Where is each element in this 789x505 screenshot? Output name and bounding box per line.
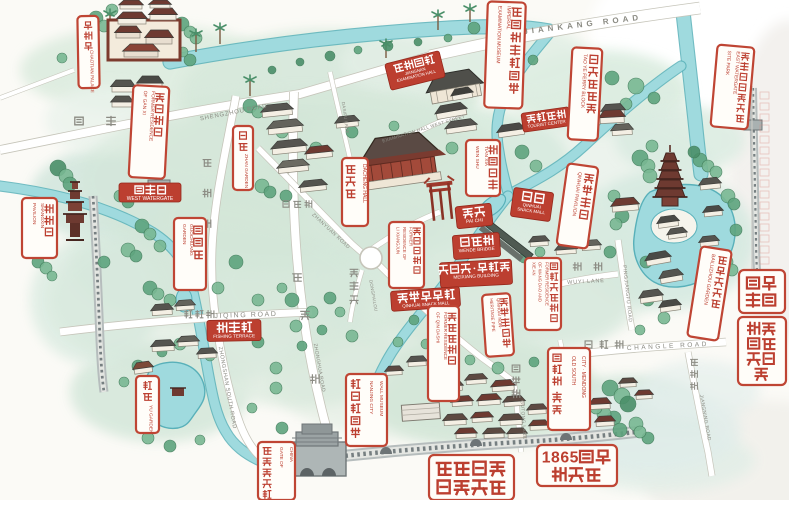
svg-text:GARDEN: GARDEN	[181, 224, 187, 245]
svg-text:OLD SOUTH: OLD SOUTH	[570, 356, 576, 386]
svg-text:NANJING CITY: NANJING CITY	[368, 381, 374, 415]
svg-text:CHAOTIAN PALACE: CHAOTIAN PALACE	[89, 50, 95, 93]
svg-text:PAVILION: PAVILION	[31, 203, 37, 225]
svg-text:FORMER: FORMER	[409, 227, 414, 246]
svg-text:6: 6	[560, 449, 569, 466]
svg-text:DACHENG HALL: DACHENG HALL	[361, 164, 367, 203]
svg-text:YU GARDEN: YU GARDEN	[147, 405, 153, 434]
svg-text:OF WANG DAO AND: OF WANG DAO AND	[538, 262, 543, 302]
svg-text:8: 8	[551, 449, 560, 466]
svg-text:ZHAN GARDEN: ZHAN GARDEN	[244, 154, 249, 188]
svg-text:WALL MUSEUM: WALL MUSEUM	[378, 381, 384, 416]
svg-text:OF QIN DASHI: OF QIN DASHI	[436, 312, 441, 343]
svg-text:FORMER RESIDENCE: FORMER RESIDENCE	[443, 312, 448, 360]
svg-text:LI XIANGJUN: LI XIANGJUN	[396, 227, 401, 254]
svg-text:GATE OF: GATE OF	[278, 447, 284, 468]
svg-text:TIAN XIA: TIAN XIA	[483, 146, 489, 167]
svg-text:RESIDENCE OF: RESIDENCE OF	[402, 227, 407, 260]
svg-text:GUOCHUANG: GUOCHUANG	[188, 224, 194, 256]
svg-text:SHANGXIN: SHANGXIN	[39, 203, 45, 229]
svg-text:WEST WATERGATE: WEST WATERGATE	[127, 196, 174, 202]
svg-text:CITY · MENDONG: CITY · MENDONG	[580, 356, 586, 398]
svg-text:WEN SHU: WEN SHU	[474, 146, 480, 169]
svg-text:XIE AN: XIE AN	[532, 262, 537, 276]
svg-text:IMPERIAL: IMPERIAL	[505, 6, 512, 30]
svg-text:FORMER RESIDENCE: FORMER RESIDENCE	[545, 262, 550, 306]
svg-text:5: 5	[570, 449, 579, 466]
svg-text:FISHING TERRACE: FISHING TERRACE	[213, 333, 255, 339]
svg-text:CHINA: CHINA	[288, 447, 294, 463]
svg-text:1: 1	[542, 449, 551, 466]
